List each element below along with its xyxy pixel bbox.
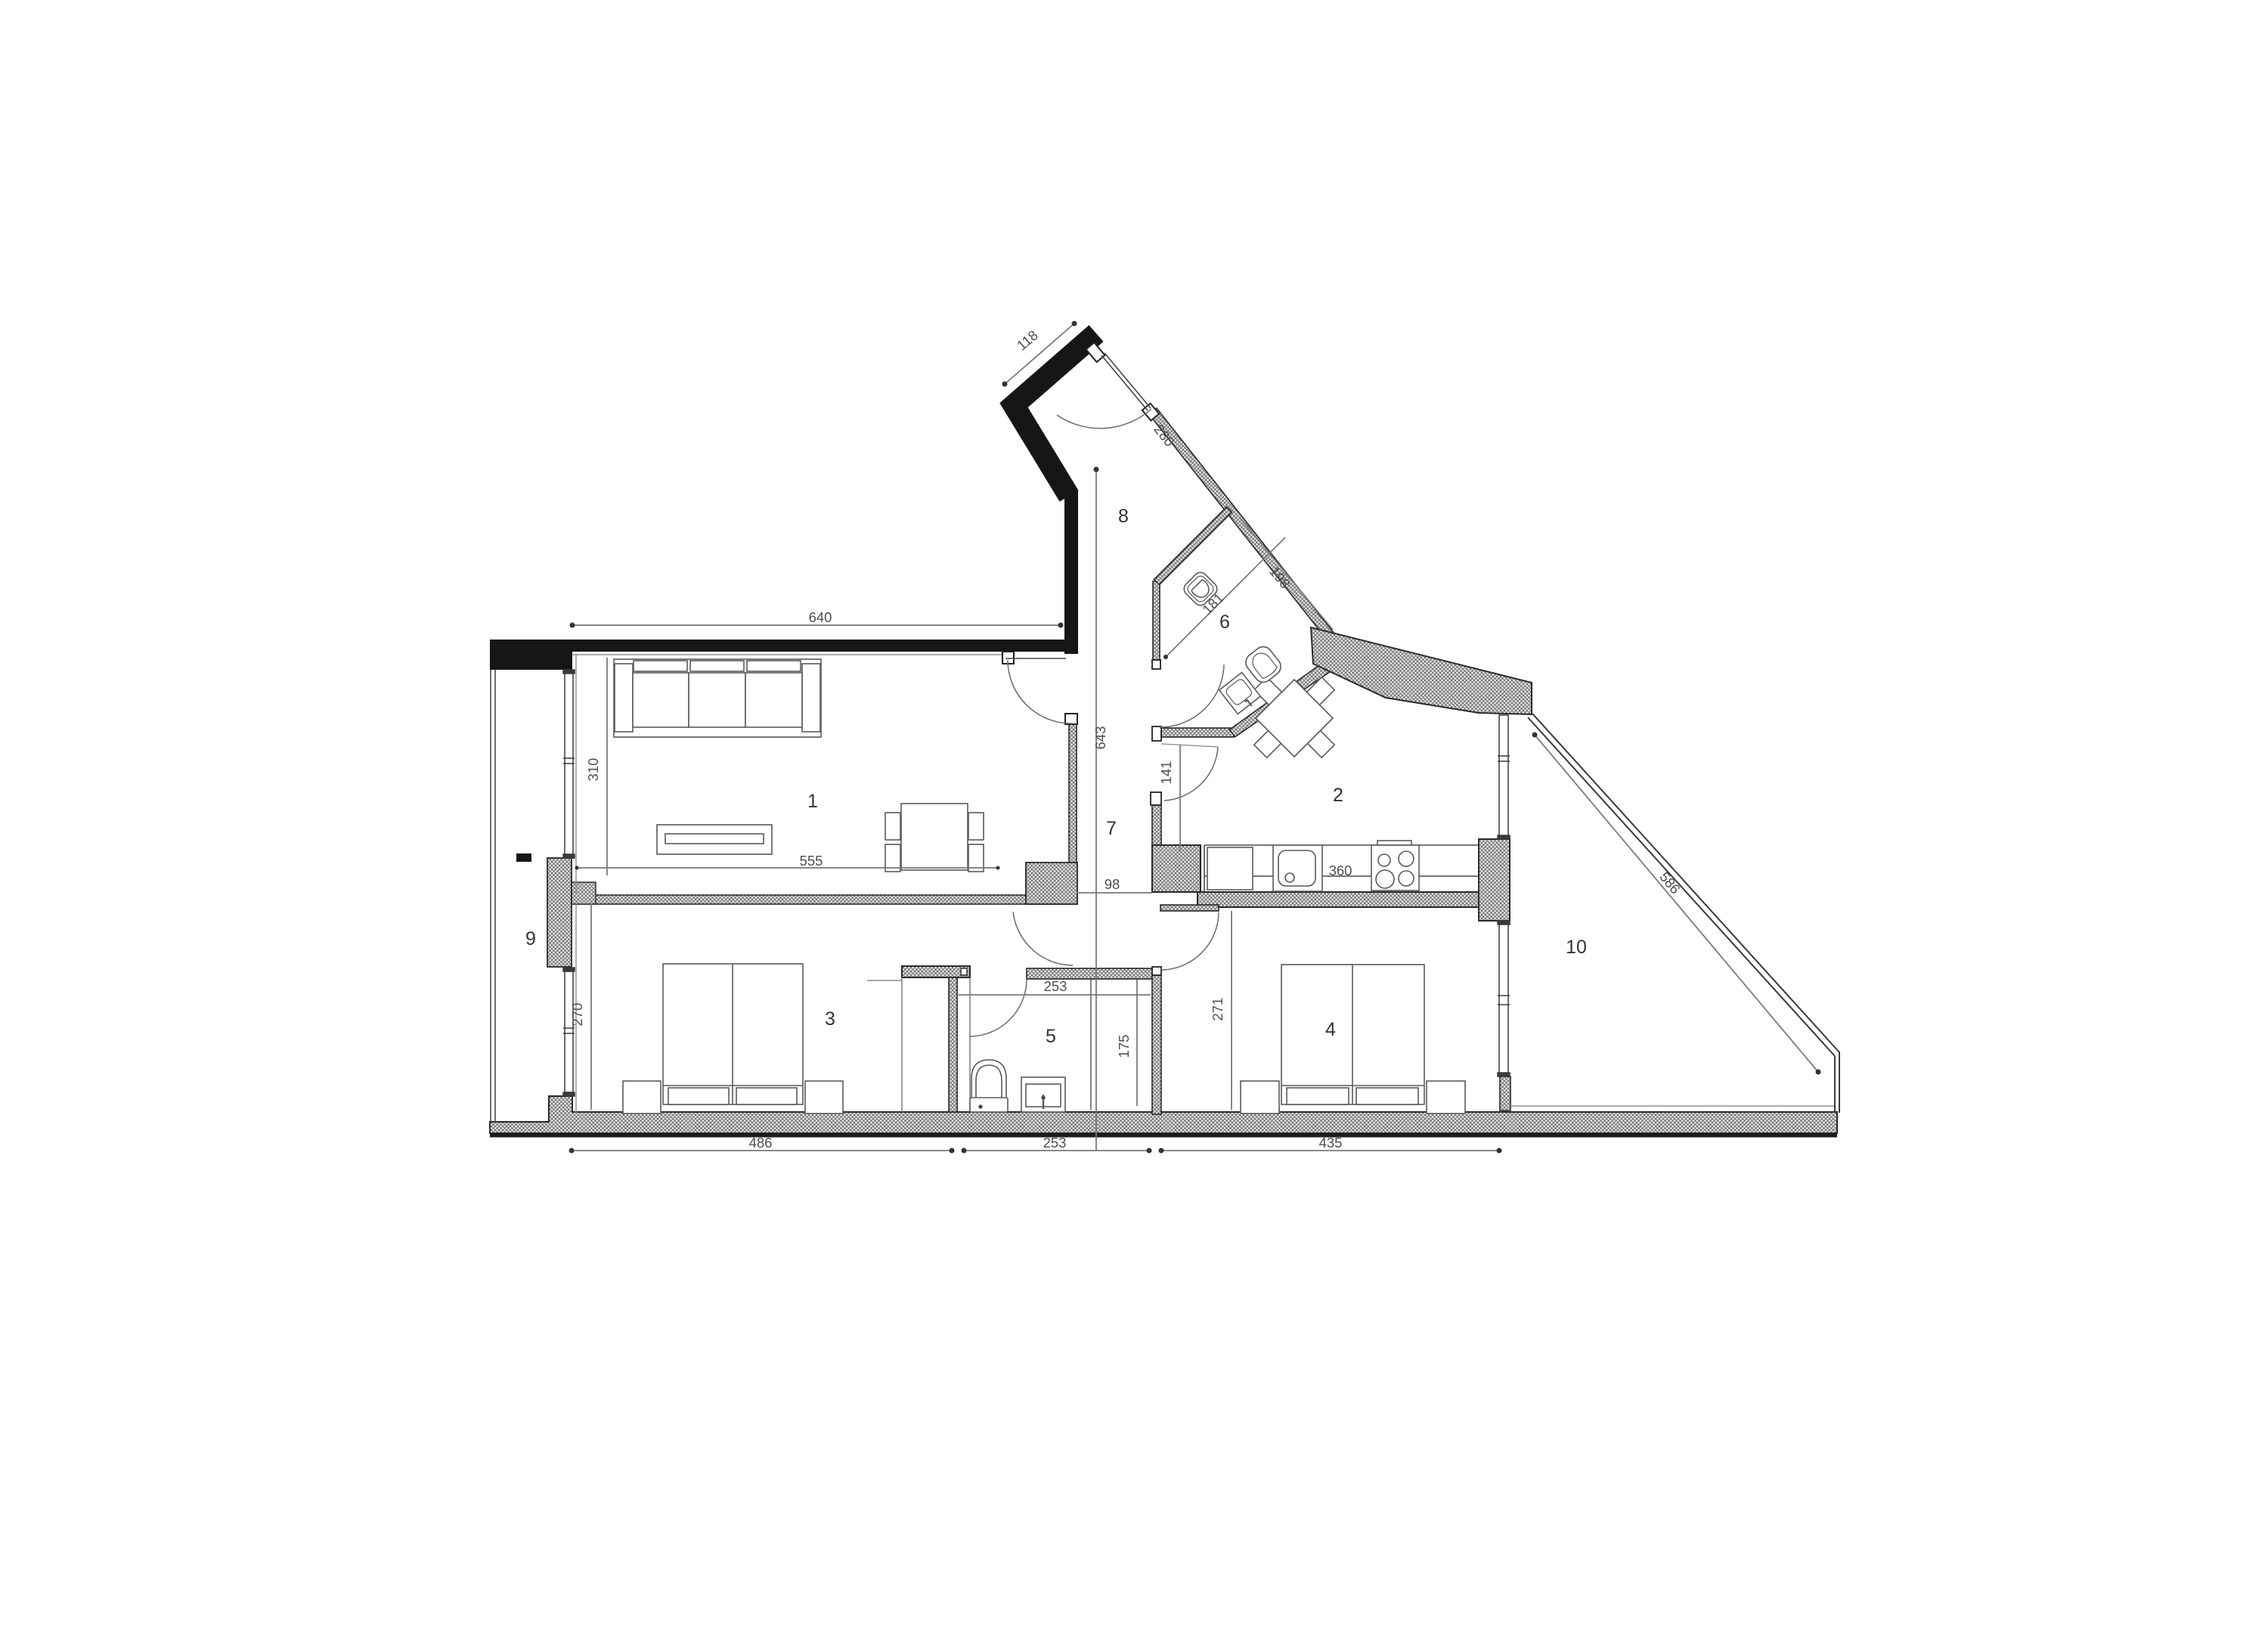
svg-text:253: 253 (1043, 1135, 1067, 1151)
svg-text:310: 310 (585, 758, 601, 782)
svg-text:10: 10 (1566, 937, 1587, 958)
svg-text:141: 141 (1158, 761, 1174, 785)
svg-text:6: 6 (1219, 612, 1230, 633)
svg-text:271: 271 (1210, 998, 1225, 1021)
svg-text:4: 4 (1325, 1019, 1336, 1040)
svg-text:7: 7 (1106, 818, 1117, 839)
svg-text:5: 5 (1046, 1026, 1056, 1047)
svg-text:253: 253 (1044, 978, 1067, 994)
svg-text:555: 555 (800, 853, 823, 869)
svg-text:435: 435 (1319, 1135, 1343, 1151)
svg-text:640: 640 (809, 609, 832, 625)
svg-text:2: 2 (1333, 785, 1343, 806)
svg-text:360: 360 (1329, 863, 1352, 878)
svg-text:643: 643 (1092, 726, 1108, 750)
svg-text:270: 270 (569, 1003, 585, 1027)
svg-text:8: 8 (1118, 506, 1129, 527)
svg-text:486: 486 (749, 1135, 773, 1151)
svg-text:1: 1 (807, 791, 818, 812)
svg-text:9: 9 (525, 928, 536, 949)
svg-text:98: 98 (1105, 876, 1120, 892)
svg-text:175: 175 (1116, 1035, 1132, 1058)
svg-text:3: 3 (825, 1008, 835, 1030)
